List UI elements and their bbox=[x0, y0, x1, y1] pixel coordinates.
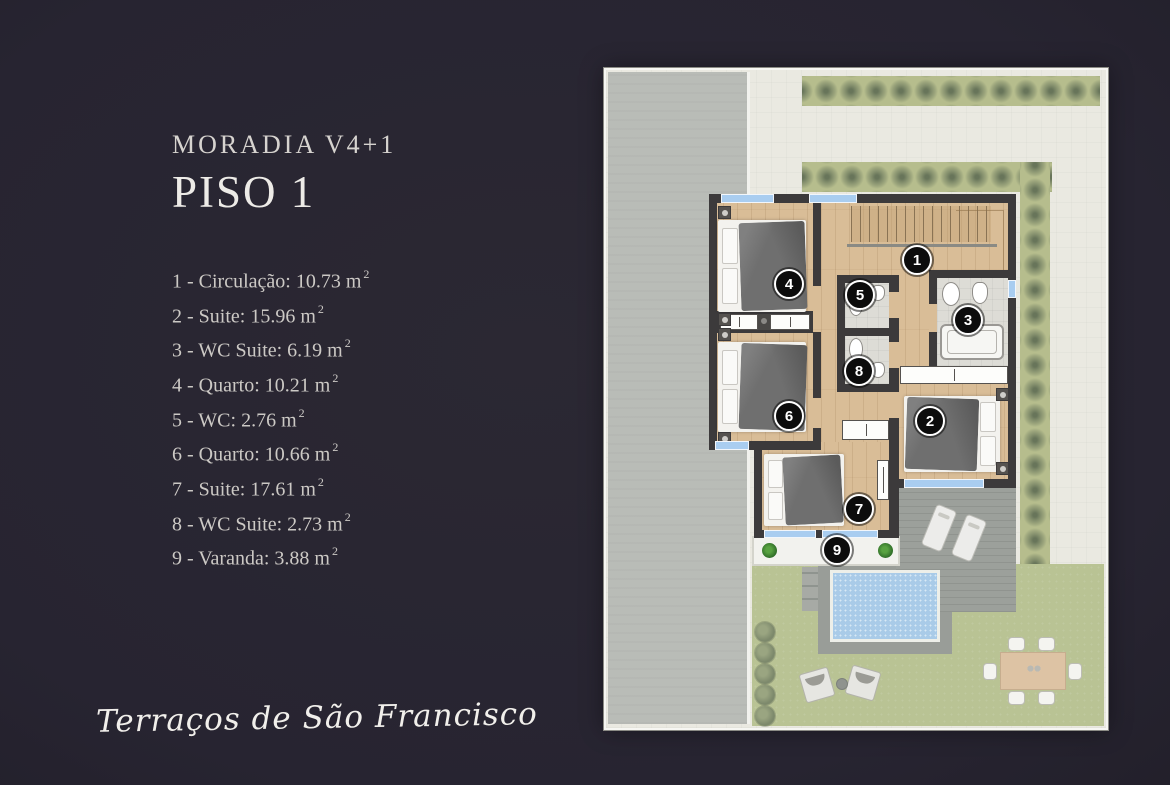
wardrobe bbox=[877, 460, 889, 500]
hall-cabinet bbox=[842, 420, 889, 440]
cabinet-sink bbox=[758, 314, 770, 330]
window bbox=[715, 441, 749, 450]
legend-item-6: 6 - Quarto: 10.66 m2 bbox=[172, 435, 369, 470]
swimming-pool bbox=[830, 570, 940, 642]
toilet bbox=[972, 282, 988, 304]
legend-item-4: 4 - Quarto: 10.21 m2 bbox=[172, 366, 369, 401]
sq-meter-sup: 2 bbox=[363, 267, 369, 281]
dining-chair bbox=[1038, 691, 1055, 705]
badge-quarto6: 6 bbox=[774, 401, 804, 431]
garden-bush bbox=[755, 643, 775, 663]
potted-plant bbox=[762, 543, 777, 558]
door-opening bbox=[813, 286, 821, 316]
bed-suite7 bbox=[764, 454, 844, 526]
badge-wc5: 5 bbox=[845, 280, 875, 310]
bed-suite2 bbox=[904, 396, 1000, 472]
bath-sink bbox=[942, 282, 960, 306]
garden-bush bbox=[755, 706, 775, 726]
floorplan: 1 2 3 4 5 6 7 8 9 bbox=[604, 68, 1108, 730]
nightstand bbox=[718, 206, 731, 219]
room-legend: 1 - Circulação: 10.73 m2 2 - Suite: 15.9… bbox=[172, 262, 369, 574]
wall bbox=[1008, 194, 1016, 488]
sq-meter-sup: 2 bbox=[345, 336, 351, 350]
wall bbox=[837, 384, 899, 392]
nightstand bbox=[718, 328, 731, 341]
page-title: MORADIA V4+1 bbox=[172, 130, 396, 160]
sq-meter-sup: 2 bbox=[318, 302, 324, 316]
badge-quarto4: 4 bbox=[774, 269, 804, 299]
closet-band bbox=[900, 366, 1008, 384]
garden-steps bbox=[802, 567, 818, 611]
door-opening bbox=[929, 304, 937, 332]
project-signature: Terraços de São Francisco bbox=[96, 696, 538, 740]
floor-subtitle: PISO 1 bbox=[172, 166, 396, 218]
hedge-inner bbox=[802, 162, 1052, 192]
window bbox=[764, 530, 816, 538]
hedge-right bbox=[1020, 162, 1050, 568]
dining-chair bbox=[983, 663, 997, 680]
legend-item-1: 1 - Circulação: 10.73 m2 bbox=[172, 262, 369, 297]
wall bbox=[837, 328, 899, 336]
door-opening bbox=[889, 292, 899, 318]
garden-side-table bbox=[836, 678, 848, 690]
dining-chair bbox=[1008, 637, 1025, 651]
sq-meter-sup: 2 bbox=[299, 406, 305, 420]
badge-circulacao: 1 bbox=[902, 245, 932, 275]
cabinet bbox=[770, 314, 810, 330]
legend-item-8: 8 - WC Suite: 2.73 m2 bbox=[172, 505, 369, 540]
sq-meter-sup: 2 bbox=[318, 475, 324, 489]
garden-bush bbox=[755, 622, 775, 642]
sq-meter-sup: 2 bbox=[345, 510, 351, 524]
brand-block: MORADIA V4+1 PISO 1 bbox=[172, 130, 396, 218]
garden-bush bbox=[755, 685, 775, 705]
legend-item-3: 3 - WC Suite: 6.19 m2 bbox=[172, 331, 369, 366]
badge-suite7: 7 bbox=[844, 494, 874, 524]
legend-item-2: 2 - Suite: 15.96 m2 bbox=[172, 297, 369, 332]
garden-bush bbox=[755, 664, 775, 684]
badge-wc-suite8: 8 bbox=[844, 356, 874, 386]
sq-meter-sup: 2 bbox=[332, 371, 338, 385]
nightstand bbox=[996, 388, 1009, 401]
nightstand bbox=[996, 462, 1009, 475]
window bbox=[904, 479, 984, 488]
window bbox=[1008, 280, 1016, 298]
door-opening bbox=[889, 342, 899, 368]
dining-chair bbox=[1008, 691, 1025, 705]
dining-chair bbox=[1038, 637, 1055, 651]
sq-meter-sup: 2 bbox=[332, 440, 338, 454]
nightstand bbox=[718, 313, 731, 326]
potted-plant bbox=[878, 543, 893, 558]
door-opening bbox=[889, 392, 899, 418]
sq-meter-sup: 2 bbox=[332, 544, 338, 558]
window bbox=[809, 194, 857, 203]
legend-item-7: 7 - Suite: 17.61 m2 bbox=[172, 470, 369, 505]
badge-wc-suite3: 3 bbox=[953, 305, 983, 335]
wall bbox=[709, 194, 717, 450]
wall bbox=[754, 442, 762, 538]
dining-table bbox=[1000, 652, 1066, 690]
dining-chair bbox=[1068, 663, 1082, 680]
legend-item-9: 9 - Varanda: 3.88 m2 bbox=[172, 539, 369, 574]
badge-suite2: 2 bbox=[915, 406, 945, 436]
badge-varanda9: 9 bbox=[822, 535, 852, 565]
legend-item-5: 5 - WC: 2.76 m2 bbox=[172, 401, 369, 436]
window bbox=[721, 194, 774, 203]
door-opening bbox=[813, 398, 821, 428]
wall bbox=[929, 270, 1008, 278]
hedge-top bbox=[802, 76, 1100, 106]
